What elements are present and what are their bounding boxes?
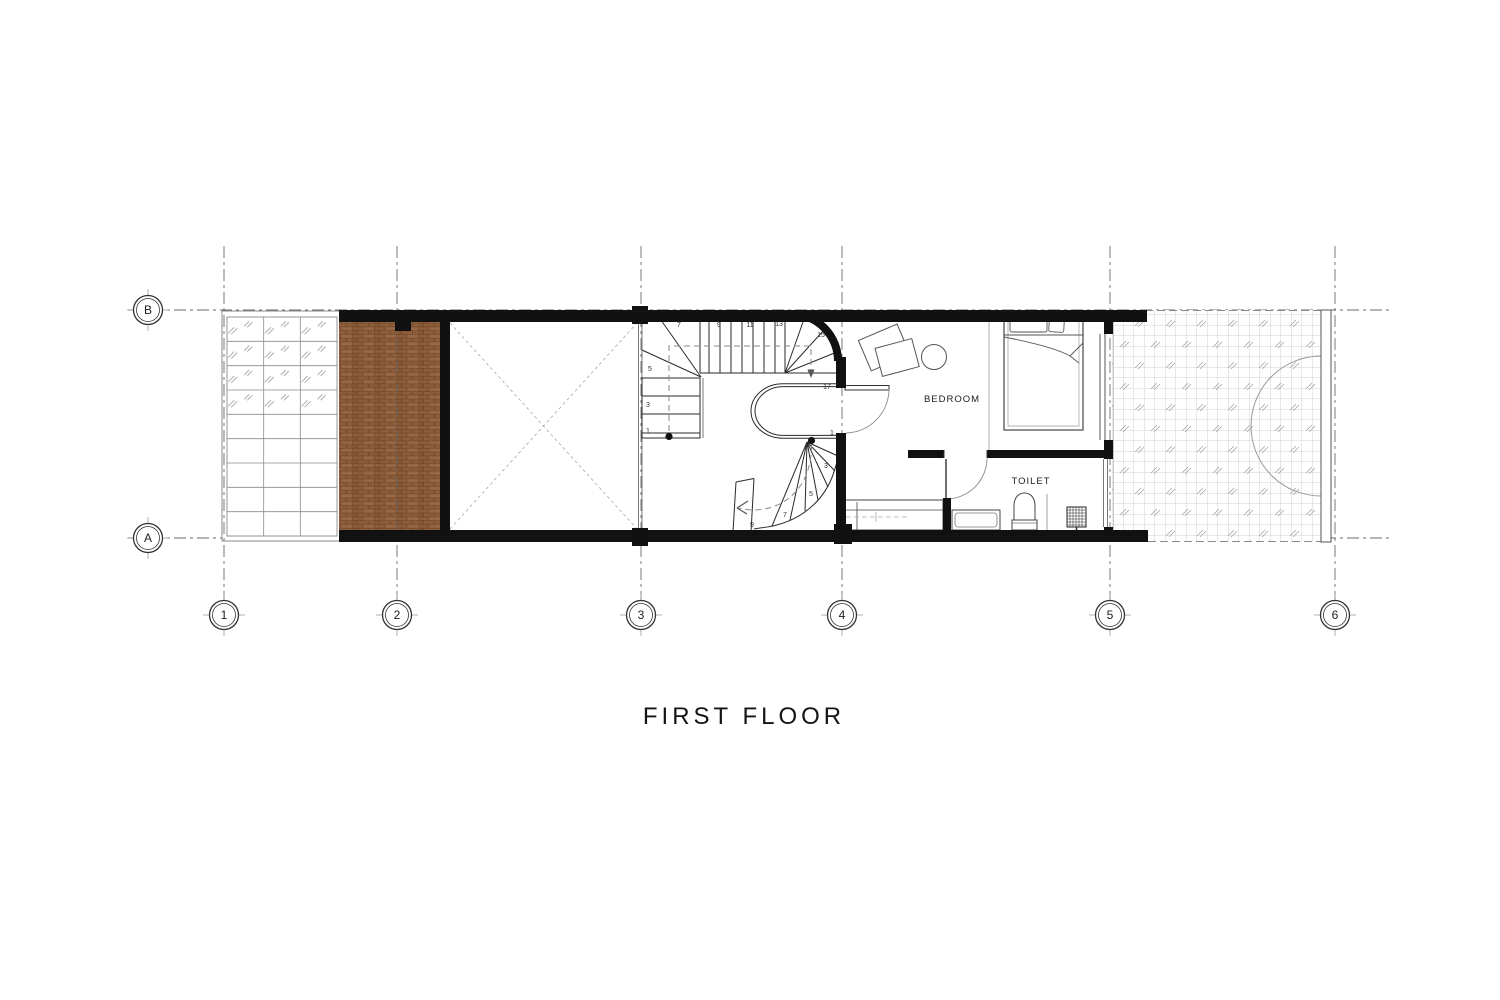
tread-number: 9: [717, 322, 721, 329]
bed: [1004, 316, 1083, 430]
tread-number: 5: [648, 366, 652, 373]
floorplan-canvas: 1 3 5 7 9 11 13 15 17 1 3 5 7 9: [0, 0, 1500, 1000]
wood-deck: [339, 322, 440, 530]
grid-bubble-label: 5: [1107, 608, 1114, 622]
column-grid3-bottom: [632, 528, 648, 546]
tread-number: 3: [646, 402, 650, 409]
tread-number: 11: [746, 322, 753, 329]
wall-deck-right: [440, 310, 450, 542]
walkline-lower-dot: [808, 437, 815, 444]
tread-number: 3: [824, 463, 828, 470]
doorway-gap: [944, 449, 987, 459]
door-leaf: [845, 386, 889, 391]
tread-number: 7: [783, 512, 787, 519]
bedroom-label: BEDROOM: [924, 394, 980, 405]
walkline-start-dot: [665, 433, 672, 440]
column-grid3-top: [632, 306, 648, 324]
tread-number: 13: [775, 321, 783, 328]
toilet-label: TOILET: [1011, 476, 1050, 487]
grid-bubble-label: A: [144, 531, 152, 545]
wall-bottom: [339, 530, 1148, 542]
wall-right-top: [1104, 310, 1113, 334]
grid-bubble-label: 2: [394, 608, 401, 622]
terrace-end-mullion: [1321, 310, 1331, 542]
wall-bedroom-toilet: [908, 450, 1105, 458]
grid-bubble-label: 4: [839, 608, 846, 622]
side-table: [922, 345, 947, 370]
grid-bubble-label: 6: [1332, 608, 1339, 622]
wall-right-bottom: [1104, 527, 1113, 542]
tread-number: 1: [646, 428, 650, 435]
wall-toilet-stub: [943, 498, 951, 530]
wall-top: [339, 310, 1147, 322]
tread-number: 9: [750, 522, 754, 529]
grid-bubble-label: 3: [638, 608, 645, 622]
deck-brick-pattern: [339, 322, 440, 530]
grid-bubble-label: B: [144, 303, 152, 317]
vanity-counter: [843, 500, 943, 530]
skylight-panel: [222, 311, 341, 541]
column-grid4-bottom: [834, 524, 852, 544]
tread-number: 17: [823, 384, 831, 391]
drawing-title: FIRST FLOOR: [643, 703, 845, 730]
toilet-fixture: [1012, 493, 1037, 530]
grid-bubble-label: 1: [221, 608, 228, 622]
floor-plan-sheet: 1 3 5 7 9 11 13 15 17 1 3 5 7 9: [0, 0, 1500, 1000]
column-grid2: [395, 322, 411, 331]
terrace: [1112, 310, 1331, 542]
tread-number: 5: [809, 491, 813, 498]
wall-right-mid: [1104, 440, 1113, 459]
skylight-glass-hatch: [227, 317, 337, 414]
tread-number: 1: [830, 430, 834, 437]
terrace-glass-hatch: [1112, 310, 1322, 542]
wall-grid4-upper: [836, 357, 846, 388]
tread-number: 7: [677, 322, 681, 329]
shower-tray: [952, 510, 1000, 530]
